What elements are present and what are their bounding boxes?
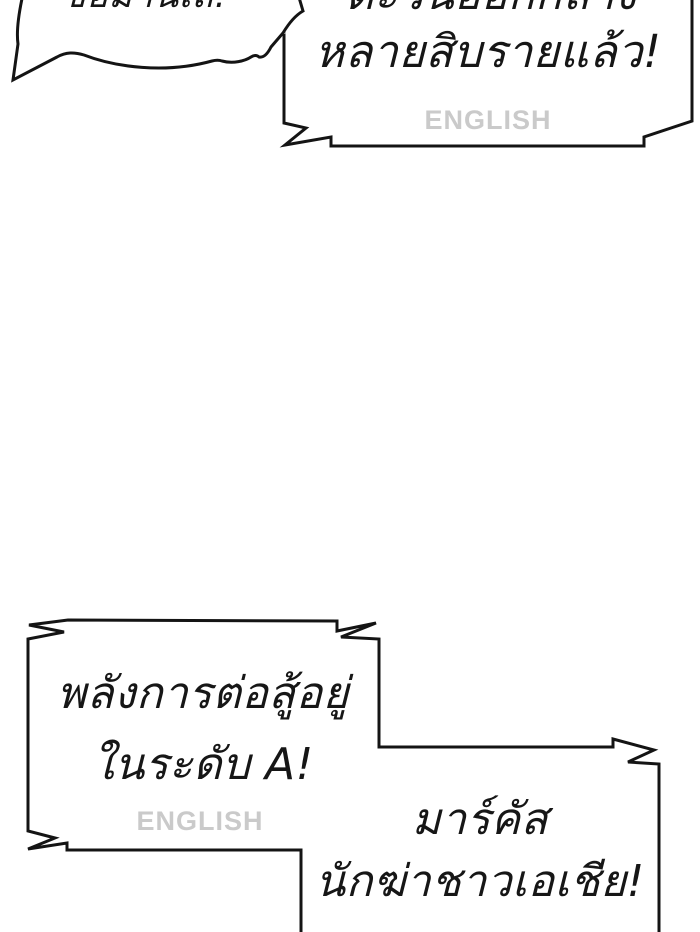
- top-right-watermark: ENGLISH: [288, 107, 688, 134]
- cloud-bubble-clipped-text: ขอมานเถ!: [20, 0, 270, 18]
- bottom-left-bubble-text-line1: พลังการต่อสู้อยู่: [30, 666, 376, 721]
- bottom-right-bubble-text-line2: นักฆ่าชาวเอเชีย!: [300, 854, 660, 909]
- top-right-bubble-text: หลายสิบรายแล้ว!: [288, 24, 688, 80]
- comic-page: ขอมานเถ! ตะวันออกกลาง หลายสิบรายแล้ว! EN…: [0, 0, 700, 932]
- bottom-left-watermark: ENGLISH: [30, 808, 370, 835]
- bottom-left-bubble-text-line2: ในระดับ A!: [30, 737, 376, 792]
- top-right-bubble-clipped-text: ตะวันออกกลาง: [295, 0, 687, 22]
- bottom-right-bubble-text-line1: มาร์คัส: [330, 792, 630, 847]
